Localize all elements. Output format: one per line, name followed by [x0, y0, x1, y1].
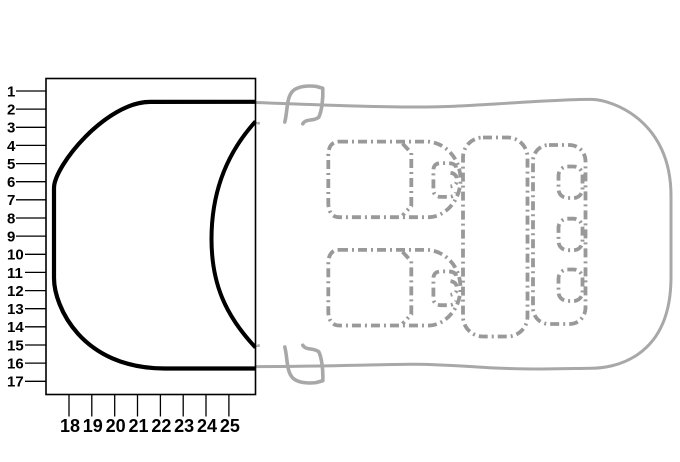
svg-text:6: 6 [7, 174, 15, 191]
svg-text:8: 8 [7, 210, 15, 227]
svg-text:21: 21 [128, 416, 148, 436]
svg-text:17: 17 [7, 374, 24, 391]
svg-text:3: 3 [7, 120, 15, 137]
svg-text:10: 10 [7, 247, 24, 264]
svg-text:24: 24 [197, 416, 217, 436]
svg-text:2: 2 [7, 102, 15, 119]
svg-text:18: 18 [60, 416, 80, 436]
svg-text:25: 25 [220, 416, 240, 436]
svg-text:22: 22 [151, 416, 171, 436]
svg-text:11: 11 [7, 265, 23, 282]
svg-text:19: 19 [83, 416, 103, 436]
svg-text:4: 4 [7, 138, 16, 155]
svg-text:20: 20 [106, 416, 126, 436]
svg-text:14: 14 [7, 319, 24, 336]
svg-text:16: 16 [7, 356, 24, 373]
svg-text:1: 1 [7, 83, 15, 100]
svg-text:15: 15 [7, 337, 24, 354]
svg-text:9: 9 [7, 229, 15, 246]
svg-text:7: 7 [7, 192, 15, 209]
svg-text:23: 23 [174, 416, 194, 436]
svg-text:5: 5 [7, 156, 15, 173]
svg-text:13: 13 [7, 301, 24, 318]
svg-text:12: 12 [7, 283, 24, 300]
